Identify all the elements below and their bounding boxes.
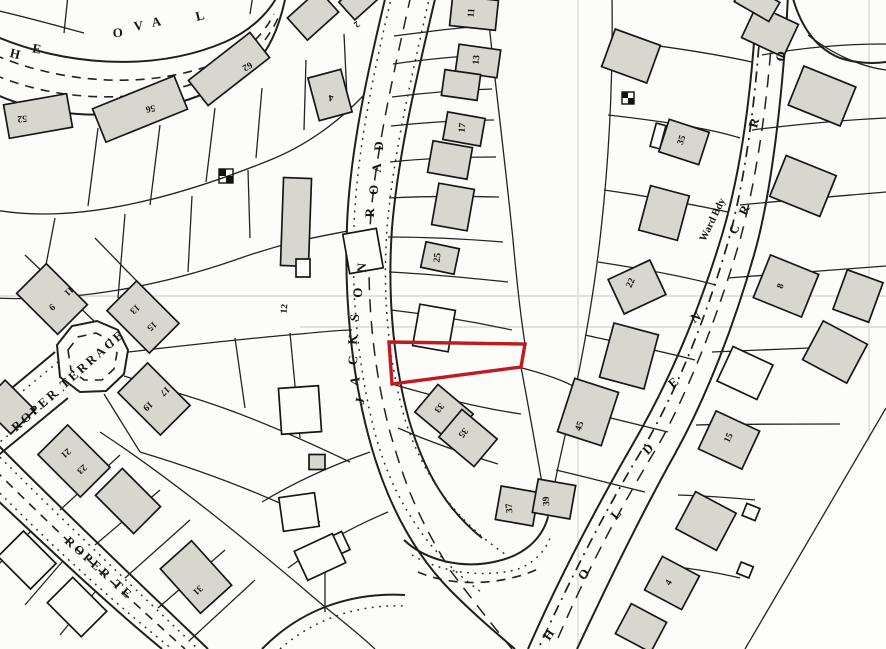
outbuilding-symbols bbox=[219, 92, 634, 183]
street-name-letter: C bbox=[344, 355, 360, 366]
building-footprint bbox=[413, 304, 456, 352]
building-footprint bbox=[441, 70, 480, 101]
street-name-letter: R bbox=[362, 207, 377, 218]
plot-number: 39 bbox=[542, 496, 553, 507]
building-footprint bbox=[95, 468, 160, 533]
glasshouse-symbol bbox=[219, 169, 233, 183]
street-name-letter: N bbox=[354, 262, 370, 273]
street-name-letter: H bbox=[8, 45, 21, 62]
street-name-letter: E bbox=[31, 40, 42, 56]
building-footprint bbox=[280, 178, 311, 267]
street-name-letter: D bbox=[371, 141, 386, 150]
ward-boundary-label: Ward Bdy bbox=[698, 196, 729, 243]
building-footprint bbox=[608, 260, 666, 314]
street-name-text: ROPER TERRACE bbox=[9, 327, 128, 435]
road-junction bbox=[262, 517, 550, 649]
building-footprint bbox=[38, 425, 110, 497]
plot-number: 37 bbox=[505, 503, 516, 514]
plot-number: 12 bbox=[280, 303, 291, 314]
building-footprint bbox=[309, 455, 325, 470]
street-name-letter: A bbox=[346, 375, 363, 387]
street-name-letter: A bbox=[369, 162, 384, 172]
street-name-letter: D bbox=[639, 440, 656, 457]
street-name-letter: R bbox=[745, 116, 762, 130]
building-footprint bbox=[495, 486, 538, 526]
building-footprint bbox=[600, 323, 659, 389]
plot-number: 4 bbox=[328, 92, 333, 102]
street-name-letter: K bbox=[345, 333, 361, 346]
building-footprint bbox=[602, 29, 661, 83]
building-footprint bbox=[160, 541, 231, 614]
building-footprint bbox=[428, 141, 473, 179]
building-footprint bbox=[742, 503, 760, 520]
street-name-letter: O bbox=[350, 287, 366, 298]
highlighted-plot-outline bbox=[389, 342, 525, 384]
building-footprint bbox=[770, 155, 837, 216]
building-footprint bbox=[639, 186, 690, 241]
building-footprint bbox=[557, 378, 618, 445]
building-footprint bbox=[339, 0, 377, 20]
street-name-letter: S bbox=[347, 313, 363, 322]
building-footprint bbox=[803, 321, 868, 383]
street-name-letter: V bbox=[133, 17, 145, 33]
plot-number: 17 bbox=[458, 122, 469, 133]
building-footprint bbox=[4, 94, 73, 139]
street-name-letter: C bbox=[725, 222, 743, 237]
street-name-letter: H bbox=[539, 626, 557, 643]
building-footprint bbox=[92, 76, 187, 142]
building-footprint bbox=[532, 479, 575, 519]
plot-number: 56 bbox=[145, 102, 156, 114]
plot-number: 2 bbox=[351, 18, 361, 29]
map-page: HEOVALJACKSONROADHOLDENCRROROPER TERRACE… bbox=[0, 0, 886, 649]
building-footprint bbox=[676, 492, 736, 551]
highlighted-plot bbox=[389, 342, 525, 384]
plot-number: 13 bbox=[472, 55, 483, 65]
street-name-letter: A bbox=[150, 13, 162, 30]
building-footprint bbox=[17, 264, 88, 335]
building-footprint bbox=[615, 604, 666, 649]
annotations-layer: Ward Bdy bbox=[698, 196, 729, 243]
street-name-letter: O bbox=[112, 25, 123, 41]
plot-number: 25 bbox=[433, 252, 444, 263]
buildings-layer bbox=[0, 0, 883, 649]
building-footprint bbox=[279, 493, 319, 532]
building-footprint bbox=[833, 270, 883, 322]
building-footprint bbox=[47, 577, 106, 636]
building-footprint bbox=[717, 346, 773, 399]
building-footprint bbox=[118, 363, 190, 435]
plot-number: 11 bbox=[467, 8, 478, 18]
building-footprint bbox=[432, 183, 475, 231]
map-canvas: HEOVALJACKSONROADHOLDENCRROROPER TERRACE… bbox=[0, 0, 886, 649]
building-footprint bbox=[737, 562, 754, 578]
building-footprint bbox=[296, 259, 310, 277]
street-name-letter: L bbox=[194, 7, 206, 24]
plot-number: 52 bbox=[17, 113, 27, 124]
street-name-letter: E bbox=[665, 374, 681, 391]
building-footprint bbox=[788, 66, 856, 126]
street-name-letter: O bbox=[366, 185, 381, 195]
building-footprint bbox=[278, 386, 321, 435]
building-footprint bbox=[287, 0, 338, 40]
glasshouse-symbol bbox=[622, 92, 634, 104]
